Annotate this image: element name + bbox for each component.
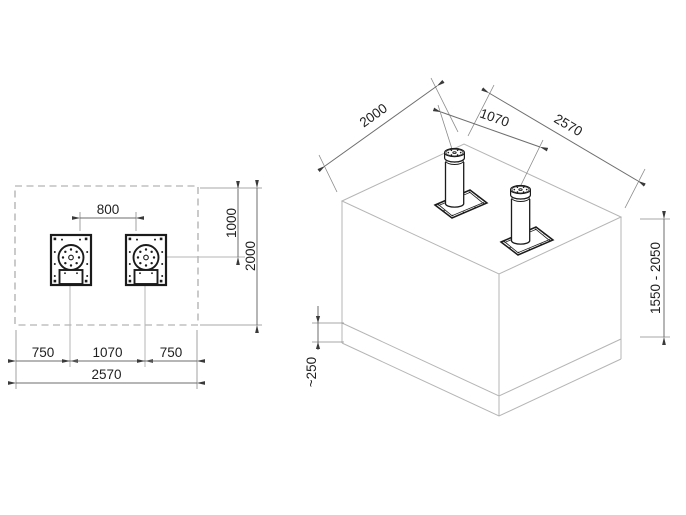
plan-dimensions: 800 1000 2000 750 1070 750 2570	[16, 188, 262, 389]
plan-dim-2570-label: 2570	[91, 367, 121, 382]
plan-view: 800 1000 2000 750 1070 750 2570	[15, 186, 262, 389]
plan-dim-2000-label: 2000	[243, 241, 258, 271]
iso-slab-arrow-bottom	[316, 342, 320, 349]
iso-dim-2570-label: 2570	[552, 111, 586, 139]
plan-dim-750-right-label: 750	[160, 345, 183, 360]
technical-drawing-page: 800 1000 2000 750 1070 750 2570	[0, 0, 686, 515]
iso-box-top-face	[342, 144, 621, 274]
iso-slab-arrow-top	[316, 316, 320, 323]
plan-dim-1000-label: 1000	[224, 208, 239, 238]
plan-flange-right	[126, 235, 166, 285]
iso-view: 2000 1070 2570 1550 - 2050 ~250	[304, 78, 670, 416]
plan-dim-1070-label: 1070	[92, 345, 122, 360]
iso-foundation-box	[342, 144, 621, 416]
bollard-installation-drawing: 800 1000 2000 750 1070 750 2570	[0, 0, 686, 515]
iso-dim-slab-label: ~250	[304, 357, 319, 387]
iso-dim-line-2000	[325, 86, 437, 166]
iso-dim-1070-label: 1070	[478, 106, 511, 130]
iso-dim-height-range-label: 1550 - 2050	[648, 242, 663, 314]
plan-dim-750-left-label: 750	[32, 345, 55, 360]
iso-dim-2000-label: 2000	[357, 101, 390, 131]
plan-flange-left	[51, 235, 91, 285]
plan-dim-800-label: 800	[97, 202, 120, 217]
